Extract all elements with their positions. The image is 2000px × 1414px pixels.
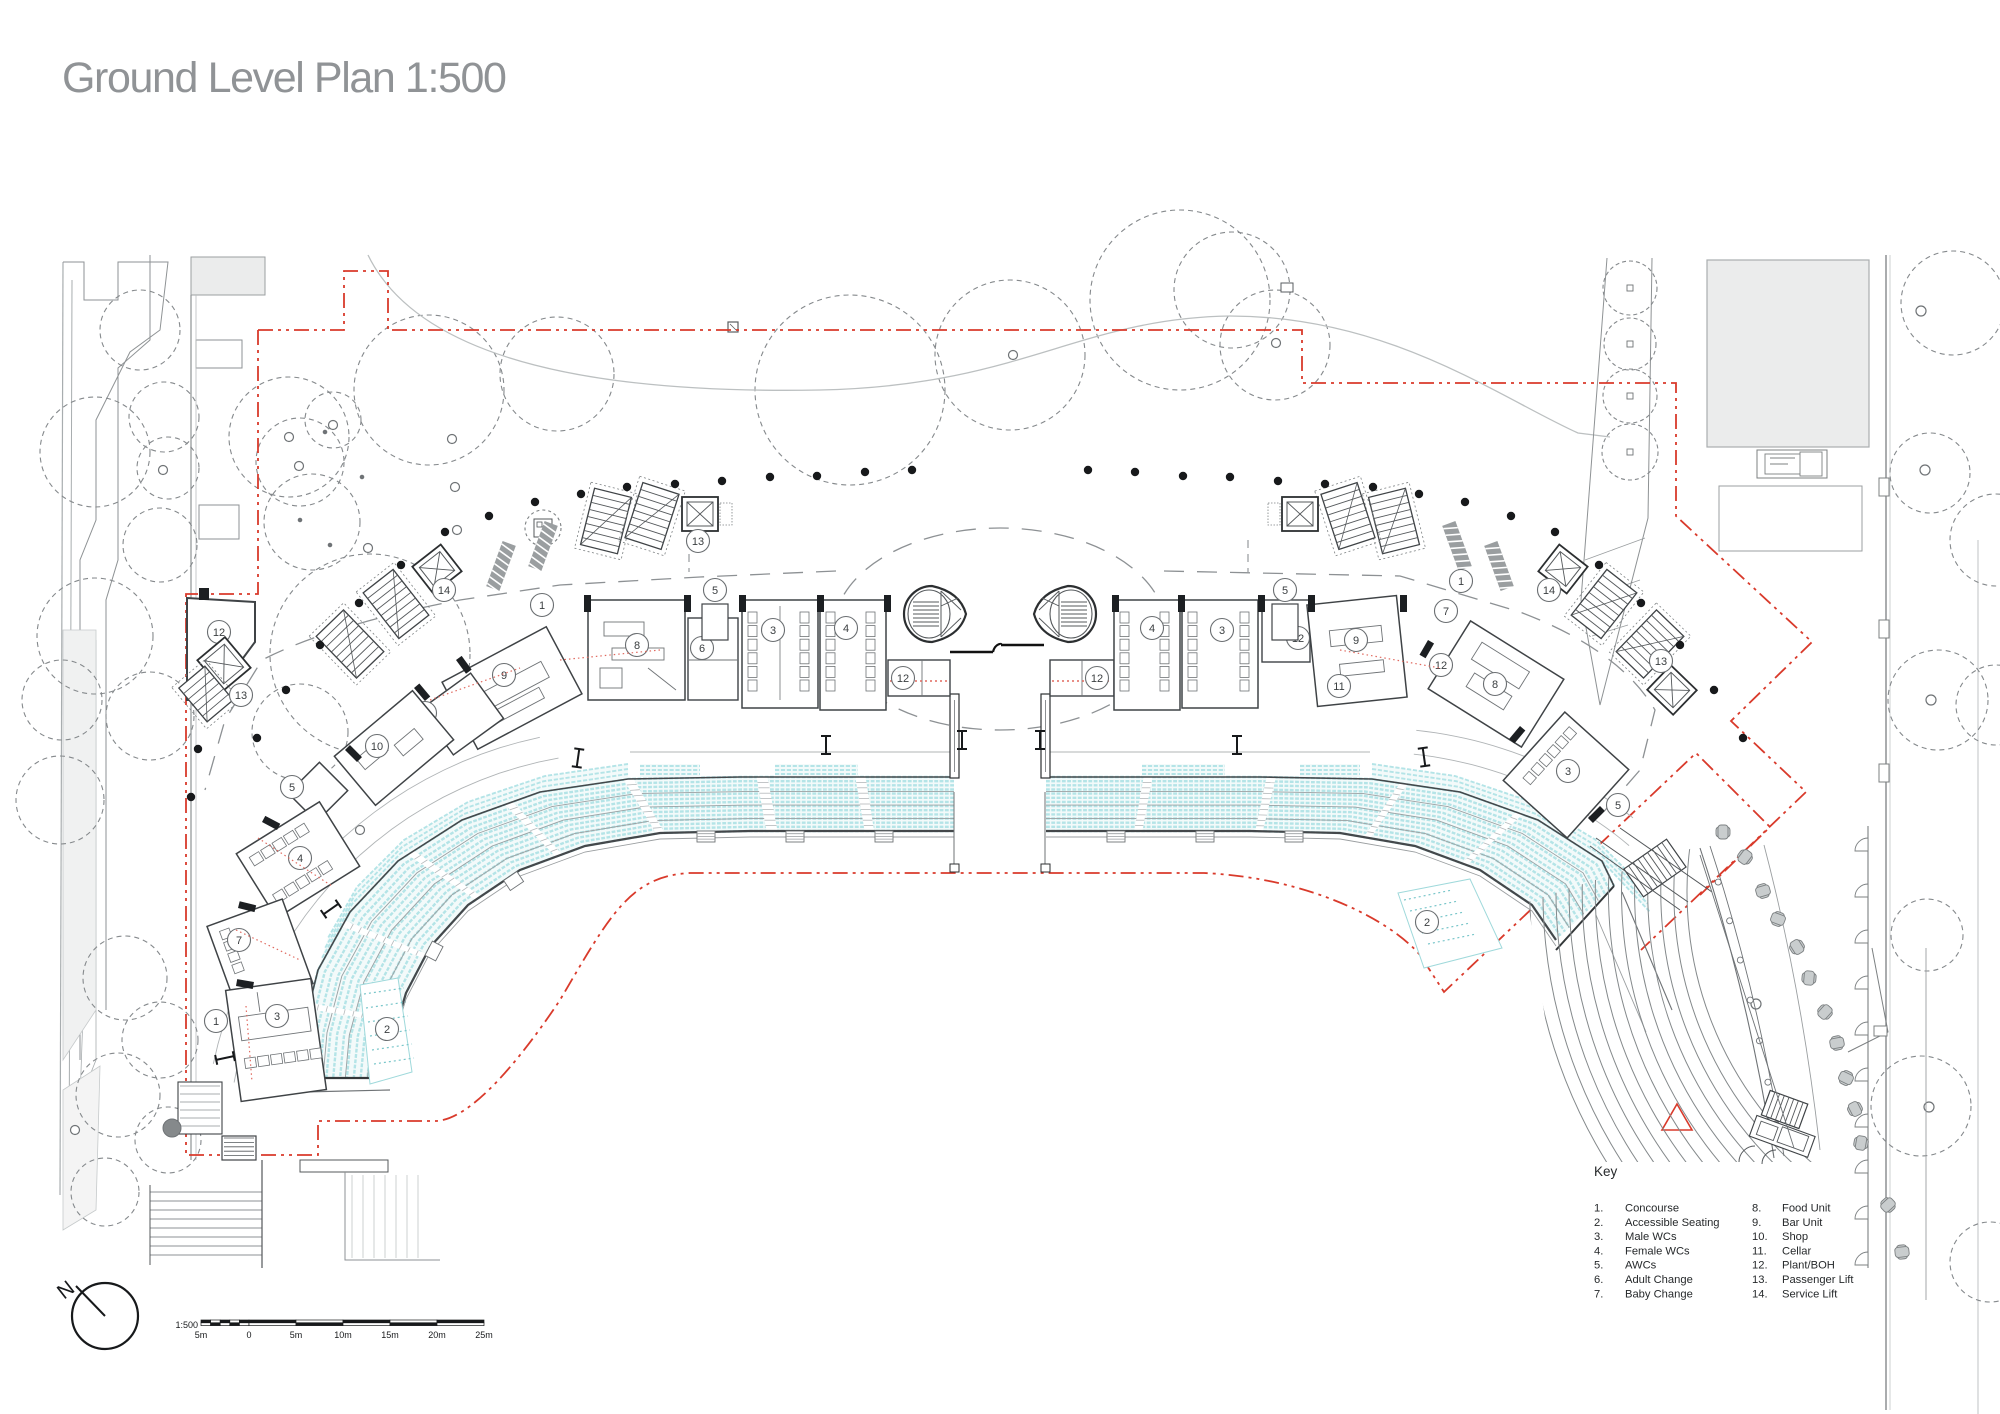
svg-text:Service Lift: Service Lift [1782, 1288, 1838, 1300]
svg-text:4: 4 [843, 623, 849, 635]
svg-text:12: 12 [213, 627, 225, 639]
svg-text:3: 3 [770, 625, 776, 637]
svg-text:5: 5 [289, 782, 295, 794]
svg-text:5: 5 [1282, 585, 1288, 597]
svg-text:Shop: Shop [1782, 1231, 1808, 1243]
svg-text:Passenger Lift: Passenger Lift [1782, 1274, 1854, 1286]
svg-text:5m: 5m [290, 1330, 303, 1340]
svg-text:6.: 6. [1594, 1274, 1603, 1286]
svg-text:4.: 4. [1594, 1245, 1603, 1257]
svg-text:7: 7 [1443, 606, 1449, 618]
svg-text:3: 3 [274, 1011, 280, 1023]
svg-text:5: 5 [712, 585, 718, 597]
svg-text:12.: 12. [1752, 1260, 1768, 1272]
svg-text:Baby Change: Baby Change [1625, 1288, 1693, 1300]
svg-text:11.: 11. [1752, 1245, 1767, 1257]
svg-text:1: 1 [213, 1016, 219, 1028]
svg-text:2.: 2. [1594, 1217, 1603, 1229]
svg-text:Food Unit: Food Unit [1782, 1203, 1831, 1215]
svg-text:Cellar: Cellar [1782, 1245, 1811, 1257]
svg-text:3: 3 [1565, 766, 1571, 778]
svg-text:6: 6 [699, 643, 705, 655]
svg-text:1: 1 [539, 600, 545, 612]
svg-text:1: 1 [1458, 576, 1464, 588]
svg-text:13: 13 [235, 690, 247, 702]
svg-text:12: 12 [1091, 673, 1103, 685]
svg-text:9.: 9. [1752, 1217, 1761, 1229]
svg-text:Bar Unit: Bar Unit [1782, 1217, 1823, 1229]
svg-text:Ground Level Plan 1:500: Ground Level Plan 1:500 [62, 54, 506, 102]
svg-text:9: 9 [1353, 635, 1359, 647]
svg-text:2: 2 [1424, 917, 1430, 929]
svg-text:Plant/BOH: Plant/BOH [1782, 1260, 1835, 1272]
svg-text:Accessible Seating: Accessible Seating [1625, 1217, 1720, 1229]
svg-text:25m: 25m [475, 1330, 493, 1340]
svg-text:10: 10 [371, 741, 383, 753]
svg-text:8: 8 [1492, 679, 1498, 691]
svg-text:15m: 15m [381, 1330, 399, 1340]
svg-text:0: 0 [246, 1330, 251, 1340]
svg-text:11: 11 [1333, 681, 1344, 693]
svg-text:Key: Key [1594, 1164, 1618, 1179]
svg-text:Female WCs: Female WCs [1625, 1245, 1690, 1257]
svg-text:4: 4 [1149, 623, 1155, 635]
svg-text:8: 8 [634, 640, 640, 652]
svg-text:7.: 7. [1594, 1288, 1603, 1300]
svg-text:5: 5 [1615, 800, 1621, 812]
svg-text:5m: 5m [195, 1330, 208, 1340]
svg-text:12: 12 [1435, 660, 1447, 672]
svg-text:Adult Change: Adult Change [1625, 1274, 1693, 1286]
svg-text:10m: 10m [334, 1330, 352, 1340]
svg-text:Concourse: Concourse [1625, 1203, 1679, 1215]
svg-text:10.: 10. [1752, 1231, 1768, 1243]
svg-text:8.: 8. [1752, 1203, 1761, 1215]
svg-text:14.: 14. [1752, 1288, 1768, 1300]
svg-text:1.: 1. [1594, 1203, 1603, 1215]
svg-text:3: 3 [1219, 625, 1225, 637]
svg-text:13: 13 [692, 536, 704, 548]
svg-text:13.: 13. [1752, 1274, 1768, 1286]
svg-text:12: 12 [897, 673, 909, 685]
svg-text:5.: 5. [1594, 1260, 1603, 1272]
svg-text:14: 14 [438, 585, 450, 597]
svg-text:4: 4 [297, 853, 303, 865]
svg-text:9: 9 [501, 670, 507, 682]
svg-text:3.: 3. [1594, 1231, 1603, 1243]
svg-text:Male WCs: Male WCs [1625, 1231, 1677, 1243]
svg-text:AWCs: AWCs [1625, 1260, 1657, 1272]
svg-text:14: 14 [1543, 585, 1555, 597]
svg-text:2: 2 [384, 1024, 390, 1036]
svg-text:7: 7 [236, 935, 242, 947]
svg-text:1:500: 1:500 [175, 1320, 198, 1330]
svg-text:20m: 20m [428, 1330, 446, 1340]
svg-text:13: 13 [1655, 656, 1667, 668]
